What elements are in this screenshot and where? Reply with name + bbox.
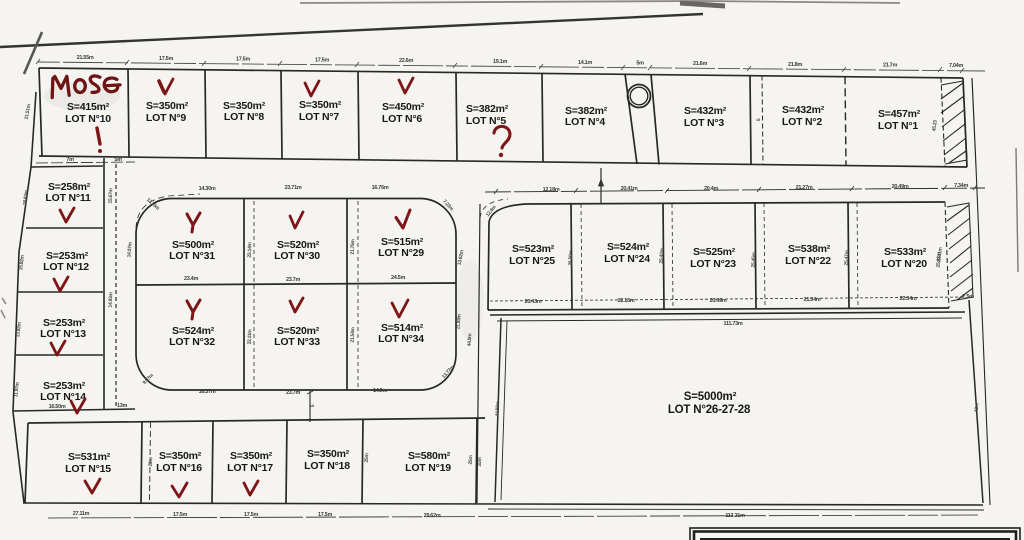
svg-text:21.7m: 21.7m (883, 63, 898, 69)
svg-text:20.49m: 20.49m (892, 184, 909, 190)
svg-text:S=457m²: S=457m² (878, 108, 921, 120)
svg-text:7.34m: 7.34m (954, 183, 969, 189)
svg-text:S=5000m²: S=5000m² (684, 391, 737, 403)
svg-text:29.62m: 29.62m (424, 513, 441, 519)
svg-text:22.11m: 22.11m (247, 329, 254, 345)
svg-text:113.21m: 113.21m (725, 513, 745, 519)
svg-text:7m: 7m (66, 157, 74, 163)
svg-text:S=450m²: S=450m² (382, 101, 425, 113)
svg-text:25.47m: 25.47m (844, 249, 851, 265)
svg-text:17.5m: 17.5m (318, 512, 333, 518)
svg-text:S=432m²: S=432m² (684, 105, 727, 117)
svg-text:LOT N°30: LOT N°30 (274, 250, 320, 262)
svg-text:19.1m: 19.1m (493, 59, 508, 65)
svg-text:22.14m: 22.14m (247, 241, 254, 257)
svg-text:13m: 13m (117, 403, 128, 409)
svg-text:22.13m: 22.13m (618, 298, 635, 304)
svg-text:17.5m: 17.5m (173, 512, 188, 518)
svg-text:LOT N°17: LOT N°17 (227, 462, 273, 474)
svg-text:25.42m: 25.42m (659, 247, 666, 263)
svg-text:S=350m²: S=350m² (159, 450, 202, 462)
svg-text:S=350m²: S=350m² (230, 450, 273, 462)
svg-text:16.76m: 16.76m (372, 185, 389, 191)
svg-text:21.76m: 21.76m (350, 238, 357, 254)
svg-text:17.5m: 17.5m (159, 56, 174, 62)
svg-text:21.6m: 21.6m (693, 61, 708, 67)
svg-text:21.55m: 21.55m (77, 55, 94, 61)
svg-text:111.73m: 111.73m (723, 321, 742, 327)
svg-text:17.5m: 17.5m (315, 58, 330, 64)
svg-text:24.5m: 24.5m (391, 275, 406, 281)
svg-text:LOT N°14: LOT N°14 (40, 391, 86, 403)
svg-text:LOT N°15: LOT N°15 (65, 463, 111, 475)
svg-text:LOT N°34: LOT N°34 (378, 333, 424, 345)
svg-text:7.04m: 7.04m (949, 63, 964, 69)
svg-text:LOT N°9: LOT N°9 (146, 112, 186, 124)
svg-text:S=350m²: S=350m² (307, 448, 350, 460)
svg-text:43m: 43m (974, 402, 981, 412)
svg-text:LOT N°8: LOT N°8 (224, 111, 264, 123)
svg-text:21.27m: 21.27m (796, 185, 813, 191)
svg-text:S=538m²: S=538m² (788, 243, 831, 255)
svg-text:LOT N°32: LOT N°32 (169, 336, 215, 348)
svg-text:LOT N°24: LOT N°24 (604, 253, 650, 265)
svg-text:20m: 20m (148, 456, 155, 466)
svg-text:25.45m: 25.45m (751, 251, 758, 267)
svg-text:14.1m: 14.1m (578, 60, 593, 66)
svg-text:27.11m: 27.11m (73, 511, 90, 517)
svg-text:S=432m²: S=432m² (782, 104, 825, 116)
svg-text:16.37m: 16.37m (199, 389, 216, 395)
svg-text:15.67m: 15.67m (108, 187, 115, 203)
svg-text:22.6m: 22.6m (399, 58, 414, 64)
svg-text:21.54m: 21.54m (350, 326, 357, 342)
svg-text:LOT N°25: LOT N°25 (509, 255, 555, 267)
svg-text:LOT N°23: LOT N°23 (690, 258, 736, 270)
svg-text:LOT N°22: LOT N°22 (785, 255, 831, 267)
svg-text:S=350m²: S=350m² (299, 99, 342, 111)
svg-text:S=523m²: S=523m² (512, 243, 555, 255)
svg-text:LOT N°16: LOT N°16 (156, 462, 202, 474)
svg-text:S=524m²: S=524m² (607, 241, 650, 253)
svg-text:20.4m: 20.4m (704, 186, 719, 192)
svg-text:23.71m: 23.71m (285, 185, 302, 191)
svg-text:14.30m: 14.30m (199, 186, 216, 192)
svg-text:25m: 25m (364, 452, 371, 462)
svg-text:14.9m: 14.9m (373, 388, 388, 394)
svg-text:S=580m²: S=580m² (408, 450, 451, 462)
svg-text:LOT N°6: LOT N°6 (382, 113, 422, 125)
svg-text:S=525m²: S=525m² (693, 246, 736, 258)
svg-text:25m: 25m (468, 454, 475, 464)
svg-text:LOT N°18: LOT N°18 (304, 460, 350, 472)
svg-text:20.41m: 20.41m (621, 186, 638, 192)
svg-text:25m: 25m (477, 456, 484, 466)
svg-text:LOT N°33: LOT N°33 (274, 336, 320, 348)
svg-text:7.5m: 7.5m (962, 294, 974, 300)
svg-text:LOT N°31: LOT N°31 (169, 250, 215, 262)
svg-text:LOT N°26-27-28: LOT N°26-27-28 (668, 404, 751, 416)
svg-text:LOT N°10: LOT N°10 (65, 113, 111, 125)
svg-text:LOT N°3: LOT N°3 (684, 117, 724, 129)
svg-text:S=533m²: S=533m² (884, 246, 927, 258)
svg-text:23.7m: 23.7m (286, 277, 301, 283)
svg-text:17.5m: 17.5m (244, 512, 259, 518)
svg-text:26.50m: 26.50m (568, 249, 575, 265)
svg-text:S=415m²: S=415m² (67, 101, 110, 113)
svg-text:5m: 5m (114, 157, 122, 163)
svg-text:23.4m: 23.4m (184, 276, 199, 282)
svg-text:14.93m: 14.93m (108, 291, 115, 307)
svg-text:LOT N°4: LOT N°4 (565, 116, 605, 128)
svg-text:LOT N°20: LOT N°20 (881, 258, 927, 270)
svg-text:S=531m²: S=531m² (68, 451, 111, 463)
svg-text:LOT N°11: LOT N°11 (45, 192, 91, 204)
svg-text:23.7m: 23.7m (286, 390, 301, 396)
svg-text:16.50m: 16.50m (49, 404, 66, 410)
svg-text:21.8m: 21.8m (788, 62, 803, 68)
svg-text:12.18m: 12.18m (543, 187, 560, 193)
svg-text:21.34m: 21.34m (804, 297, 821, 303)
svg-text:22.34m: 22.34m (900, 296, 917, 302)
svg-text:LOT N°13: LOT N°13 (40, 328, 86, 340)
svg-text:17.5m: 17.5m (236, 57, 251, 63)
svg-text:44.9m: 44.9m (467, 333, 474, 347)
svg-text:S=382m²: S=382m² (466, 103, 509, 115)
svg-text:LOT N°1: LOT N°1 (878, 120, 918, 132)
svg-text:5m: 5m (636, 61, 644, 67)
svg-text:LOT N°7: LOT N°7 (299, 111, 339, 123)
svg-text:S=350m²: S=350m² (146, 100, 189, 112)
svg-text:LOT N°29: LOT N°29 (378, 247, 424, 259)
svg-text:44.93m: 44.93m (495, 400, 502, 416)
svg-text:20.43m: 20.43m (525, 299, 542, 305)
svg-text:LOT N°12: LOT N°12 (43, 261, 89, 273)
svg-text:LOT N°2: LOT N°2 (782, 116, 822, 128)
svg-text:20.49m: 20.49m (710, 298, 727, 304)
svg-text:LOT N°19: LOT N°19 (405, 462, 451, 474)
